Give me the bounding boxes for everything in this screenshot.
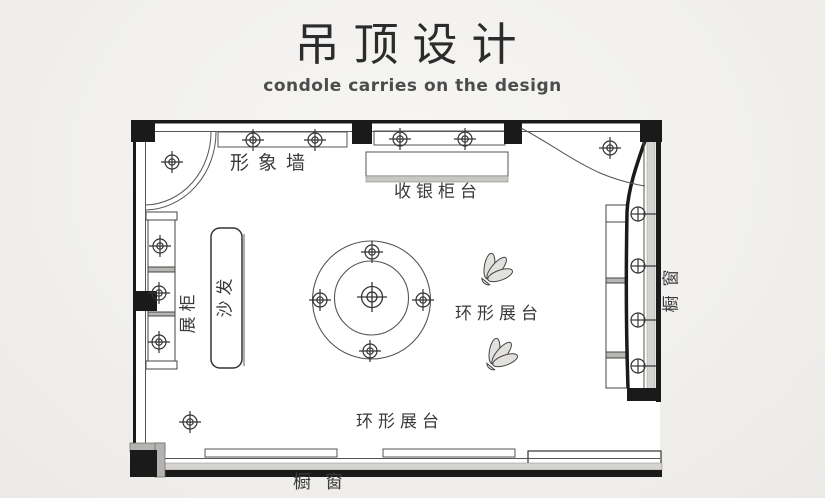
image-wall-panel [218, 132, 347, 147]
label-cashier-counter: 收银柜台 [394, 184, 482, 201]
label-sofa: 沙发 [218, 274, 235, 318]
label-shop-window-bottom: 橱窗 [293, 474, 357, 492]
label-image-wall: 形象墙 [230, 154, 314, 173]
display-wall-right [606, 205, 627, 388]
label-ring-display-center: 环形展台 [455, 306, 543, 323]
cashier-counter [366, 152, 508, 182]
window-platform-left [205, 449, 337, 457]
page: 吊顶设计 condole carries on the design [0, 0, 825, 498]
label-shop-window-right: 橱窗 [664, 263, 681, 313]
window-platform-middle [383, 449, 515, 457]
label-ring-display-bottom: 环形展台 [356, 414, 444, 431]
label-display-cabinet: 展柜 [181, 290, 198, 334]
